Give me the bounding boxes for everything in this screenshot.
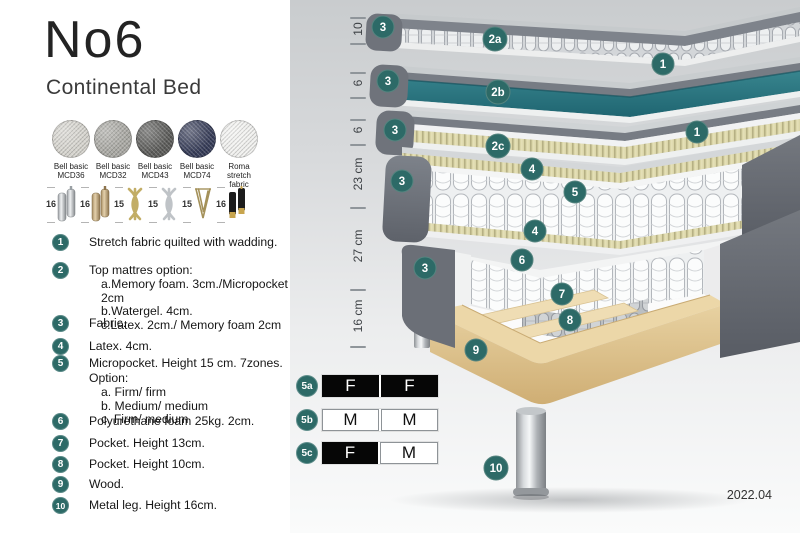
svg-text:6: 6 (519, 255, 525, 267)
leg-height: 16 (46, 199, 56, 209)
swatch-name: Bell basic (96, 162, 130, 171)
legend-item-9: 9 Wood. (52, 476, 298, 493)
measurement-label: 23 cm (351, 154, 365, 194)
legend-number-badge: 7 (52, 435, 69, 452)
firmness-row-5b: 5b M M (296, 409, 446, 431)
leg-option-cylinder-wood: 16 (80, 184, 114, 228)
swatch-name: Bell basic (54, 162, 88, 171)
legend-number-badge: 4 (52, 338, 69, 355)
callout-badge: 3 (372, 16, 394, 38)
firmness-row-5a: 5a F F (296, 375, 446, 397)
black-gold-leg-icon (226, 186, 248, 229)
legend-number-badge: 9 (52, 476, 69, 493)
legend-text: Wood. (89, 476, 124, 492)
ruler-tick (350, 97, 366, 99)
callout-badge: 6 (511, 249, 533, 271)
swatch-name: Bell basic (180, 162, 214, 171)
fabric-swatch: Bell basicMCD43 (134, 120, 176, 189)
ruler-tick (350, 207, 366, 209)
fabric-swatch-circle (52, 120, 90, 158)
leg-option-black-gold: 16 (216, 184, 250, 228)
legend-text: Fabric. (89, 315, 126, 331)
svg-text:4: 4 (532, 226, 539, 238)
legend-text: Pocket. Height 13cm. (89, 435, 205, 451)
svg-text:3: 3 (380, 22, 386, 34)
diagram-panel: 3 2a 1 3 2b 1 3 2c 3 4 5 4 3 6 7 8 9 10 (290, 0, 800, 533)
legend-text: Micropocket. Height 15 cm. 7zones. Optio… (89, 355, 298, 386)
callout-badge: 3 (391, 170, 413, 192)
legend-text: Top mattres option: (89, 262, 298, 278)
callout-badge: 10 (484, 456, 508, 480)
firmness-cell: M (322, 409, 379, 431)
firmness-cell: M (380, 442, 438, 464)
measurement-label: 16 cm (351, 296, 365, 336)
svg-text:7: 7 (559, 289, 565, 301)
svg-text:10: 10 (490, 463, 503, 475)
svg-text:2a: 2a (489, 34, 502, 46)
callout-badge: 4 (524, 220, 546, 242)
legend-item-4: 4 Latex. 4cm. (52, 338, 298, 355)
callout-badge: 1 (652, 53, 674, 75)
legend-subitem: a.Memory foam. 3cm./Micropocket 2cm (101, 278, 298, 305)
callout-badge: 1 (686, 121, 708, 143)
leg-option-twist-gold: 15 (114, 184, 148, 228)
callout-badge: 3 (384, 119, 406, 141)
fabric-swatch: Romastretch fabric (218, 120, 260, 189)
legend-item-8: 8 Pocket. Height 10cm. (52, 456, 298, 473)
legend-text: Metal leg. Height 16cm. (89, 497, 217, 513)
fabric-swatch-circle (94, 120, 132, 158)
legend-number-badge: 6 (52, 413, 69, 430)
floor-shadow (390, 487, 750, 513)
leg-option-cylinder-silver: 16 (46, 184, 80, 228)
callout-badge: 4 (521, 158, 543, 180)
leg-option-hairpin: 15 (182, 184, 216, 228)
swatch-code: MCD36 (54, 171, 88, 180)
firmness-cell: F (322, 375, 379, 397)
firmness-cell: F (322, 442, 378, 464)
fabric-swatch-circle (136, 120, 174, 158)
callout-badge: 2a (483, 27, 507, 51)
hairpin-leg-icon (192, 186, 214, 229)
cylinder-silver-leg-icon (56, 186, 78, 229)
ruler-tick (350, 289, 366, 291)
swatch-name: Bell basic (138, 162, 172, 171)
swatch-name: Roma (218, 162, 260, 171)
fabric-swatch-circle (220, 120, 258, 158)
twist-gold-leg-icon (124, 186, 146, 229)
legend-number-badge: 10 (52, 497, 69, 514)
legend-number-badge: 1 (52, 234, 69, 251)
ruler-tick (350, 346, 366, 348)
firmness-cell: F (381, 375, 438, 397)
cylinder-wood-leg-icon (90, 186, 112, 229)
page-title: No6 (44, 10, 145, 70)
swatch-code: MCD43 (138, 171, 172, 180)
legend-item-7: 7 Pocket. Height 13cm. (52, 435, 298, 452)
fabric-swatch: Bell basicMCD74 (176, 120, 218, 189)
legend-text: Pocket. Height 10cm. (89, 456, 205, 472)
legend-item-3: 3 Fabric. (52, 315, 298, 332)
leg-option-twist-silver: 15 (148, 184, 182, 228)
firmness-row-5c: 5c F M (296, 442, 446, 464)
firmness-option-badge: 5c (296, 442, 318, 464)
bed-infographic: No6 Continental Bed Bell basicMCD36 Bell… (0, 0, 800, 533)
fabric-swatch: Bell basicMCD32 (92, 120, 134, 189)
legend-item-10: 10 Metal leg. Height 16cm. (52, 497, 298, 514)
callout-badge: 3 (414, 257, 436, 279)
callout-badge: 9 (465, 339, 487, 361)
svg-text:3: 3 (392, 125, 398, 137)
layer-top-mattress (365, 7, 800, 66)
leg-height: 16 (80, 199, 90, 209)
leg-height: 15 (148, 199, 158, 209)
svg-text:1: 1 (660, 59, 667, 71)
leg-options: 16 16 15 (46, 184, 250, 228)
callout-badge: 3 (377, 70, 399, 92)
callout-badge: 5 (564, 181, 586, 203)
svg-text:8: 8 (567, 315, 574, 327)
legend-text: Polyurethane foam 25kg. 2cm. (89, 413, 254, 429)
callout-badge: 2c (486, 134, 510, 158)
legend-text: Latex. 4cm. (89, 338, 152, 354)
legend-number-badge: 3 (52, 315, 69, 332)
legend-item-6: 6 Polyurethane foam 25kg. 2cm. (52, 413, 298, 430)
legend-item-1: 1 Stretch fabric quilted with wadding. (52, 234, 298, 251)
swatch-code: MCD32 (96, 171, 130, 180)
callout-badge: 2b (486, 80, 510, 104)
legend-number-badge: 5 (52, 355, 69, 372)
leg-height: 16 (216, 199, 226, 209)
firmness-option-badge: 5b (296, 409, 318, 431)
svg-text:2c: 2c (492, 141, 505, 153)
fabric-swatches: Bell basicMCD36 Bell basicMCD32 Bell bas… (50, 120, 260, 189)
ruler-tick (350, 43, 366, 45)
front-leg (513, 407, 549, 500)
legend-subitem: b. Medium/ medium (101, 400, 298, 414)
svg-text:3: 3 (422, 263, 428, 275)
page-subtitle: Continental Bed (46, 76, 201, 100)
fabric-swatch: Bell basicMCD36 (50, 120, 92, 189)
swatch-code: MCD74 (180, 171, 214, 180)
leg-height: 15 (182, 199, 192, 209)
legend-text: Stretch fabric quilted with wadding. (89, 234, 277, 250)
ruler-tick (350, 144, 366, 146)
svg-text:4: 4 (529, 164, 536, 176)
fabric-swatch-circle (178, 120, 216, 158)
svg-text:5: 5 (572, 187, 579, 199)
firmness-option-badge: 5a (296, 375, 318, 397)
twist-silver-leg-icon (158, 186, 180, 229)
measurement-label: 27 cm (351, 226, 365, 266)
legend-number-badge: 2 (52, 262, 69, 279)
version-stamp: 2022.04 (727, 488, 772, 502)
leg-height: 15 (114, 199, 124, 209)
callout-badge: 7 (551, 283, 573, 305)
firmness-cell: M (381, 409, 438, 431)
svg-text:3: 3 (385, 76, 391, 88)
legend-subitem: a. Firm/ firm (101, 386, 298, 400)
svg-text:1: 1 (694, 127, 701, 139)
callout-badge: 8 (559, 309, 581, 331)
svg-text:3: 3 (399, 176, 405, 188)
svg-text:2b: 2b (491, 87, 504, 99)
svg-text:9: 9 (473, 345, 479, 357)
legend-number-badge: 8 (52, 456, 69, 473)
